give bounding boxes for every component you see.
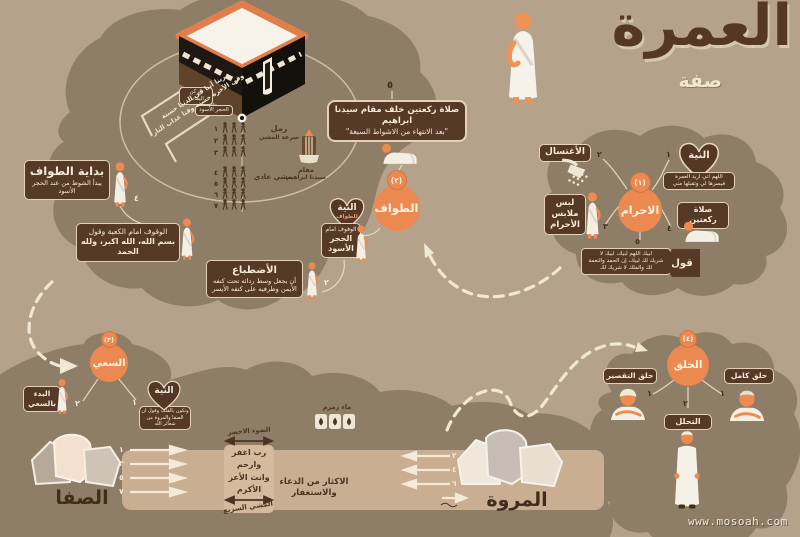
lap-number: ٣ [119, 459, 124, 468]
step-number: ٥ [635, 237, 640, 246]
walker-icon [221, 134, 229, 145]
header-pilgrim-icon [496, 11, 548, 103]
walker-icon [221, 146, 229, 157]
lap-number: ٢ [452, 451, 457, 460]
ihram-clothes-badge: لبس ملابس الأحرام [544, 194, 586, 235]
step-number: ٤ [667, 224, 672, 233]
maqam-ibrahim-icon [297, 129, 321, 165]
step-number: ٣ [603, 222, 608, 231]
page-title: العمرة [612, 0, 792, 55]
ihram-praying-pilgrim [681, 218, 723, 245]
water-drop-icon [329, 414, 341, 429]
step-number: ١ [647, 389, 652, 398]
safa-label: الصفا [46, 487, 118, 511]
walker-icon [239, 146, 247, 157]
watermark: www.mosoah.com [688, 515, 788, 528]
idtibaa-pilgrim [303, 262, 321, 300]
lap-number: ٧ [119, 487, 124, 496]
step-number: ٢ [75, 399, 80, 408]
step-number: ١ [720, 389, 725, 398]
umrah-infographic: العمرة صفة الركن اليماني الحجر الأسود رب… [0, 0, 800, 537]
lap-number: ١ [119, 445, 124, 454]
full-shave-pilgrim-bust [727, 386, 767, 422]
tawaf-start-pilgrim [109, 162, 131, 208]
water-drop-icon [343, 414, 355, 429]
walker-icon [221, 188, 229, 199]
walker-icon [239, 188, 247, 199]
walk-row: ٦ [212, 188, 247, 199]
step-number: ١ [132, 398, 137, 407]
ihram-intention-text: اللهم اني اريد العمرة فيسرها لي وتقبلها … [663, 172, 735, 190]
shower-icon [560, 158, 596, 190]
lap-number: ٥ [119, 473, 124, 482]
tawaf-start-badge: بداية الطواف يبدأ الشوط من عند الحجر الأ… [24, 160, 110, 200]
step-number: ١ [666, 150, 671, 159]
walker-icon [230, 122, 238, 133]
marwa-label: المروة [478, 489, 556, 513]
dhikr-label: الاكثار من الدعاء والاستغفار [260, 477, 368, 498]
walker-icon [239, 134, 247, 145]
maqam-ibrahim-label: مقام سيدنا ابراهيم [284, 166, 328, 182]
water-drop-icon [315, 414, 327, 429]
walk-row: ٥ [212, 177, 247, 188]
halq-trim-badge: حلق التقصير [603, 368, 657, 384]
walk-row: ٧ [212, 199, 247, 210]
lap-number: ٦ [452, 479, 457, 488]
walk-row: ٤ [212, 166, 247, 177]
walker-icon [221, 177, 229, 188]
walker-icon [221, 166, 229, 177]
idtibaa-badge: الأضطباع أن يجعل وسط ردائه تحت كتفه الأي… [206, 260, 303, 298]
walker-icon [230, 146, 238, 157]
raml-row: ٣ [212, 146, 247, 157]
step-number: ٤ [134, 194, 139, 203]
walker-icon [239, 199, 247, 210]
raml-row: ١ [212, 122, 247, 133]
ihram-clothes-pilgrim [581, 192, 604, 240]
zamzam-bottles [315, 414, 355, 429]
step-number: ٥ [387, 80, 393, 91]
tahallul-badge: التحلل [664, 414, 712, 430]
zamzam-label: ماء زمزم [317, 403, 357, 411]
page-subtitle: صفة [678, 70, 722, 92]
walker-icon [239, 166, 247, 177]
walker-icon [239, 122, 247, 133]
step-number: ٢ [324, 278, 329, 287]
lap-number: ٤ [452, 465, 457, 474]
raml-row: ٢ [212, 134, 247, 145]
praying-pilgrim [379, 140, 421, 167]
raml-label: رمل سرعة المشي [256, 124, 302, 142]
halq-full-badge: حلق كامل [724, 368, 774, 384]
thobe-man-figure [667, 430, 707, 510]
sai-start-pilgrim [53, 379, 71, 415]
walker-icon [230, 199, 238, 210]
ihram-step-circle: (١) الاحرام [617, 172, 663, 232]
walker-icon [221, 122, 229, 133]
walker-icon [221, 199, 229, 210]
walker-icon [239, 177, 247, 188]
walker-icon [230, 177, 238, 188]
tawaf-step-circle: (٢) الطواف [373, 170, 420, 231]
tawaf-prayer-banner: صلاة ركعتين خلف مقام سيدنا ابراهيم "بعد … [327, 100, 467, 142]
trim-pilgrim-bust [609, 386, 647, 420]
walker-icon [230, 166, 238, 177]
stand-before-kaaba-badge: الوقوف امام الكعبة وقول بسم الله، الله ا… [76, 223, 180, 262]
talbiyah-text-box: لبيك اللهم لبيك، لبيك لا شريك لك لبيك، إ… [581, 248, 671, 275]
sai-step-circle: (٣) السعي [89, 331, 129, 382]
step-number: ٢ [683, 399, 688, 408]
walker-icon [230, 134, 238, 145]
black-stone-pilgrim [352, 225, 370, 263]
walker-icon [230, 188, 238, 199]
halq-step-circle: (٤) الحلق [666, 330, 710, 386]
sai-intention-heart: النية [145, 378, 183, 412]
step-number: ٢ [597, 150, 602, 159]
stand-kaaba-pilgrim [177, 218, 197, 261]
